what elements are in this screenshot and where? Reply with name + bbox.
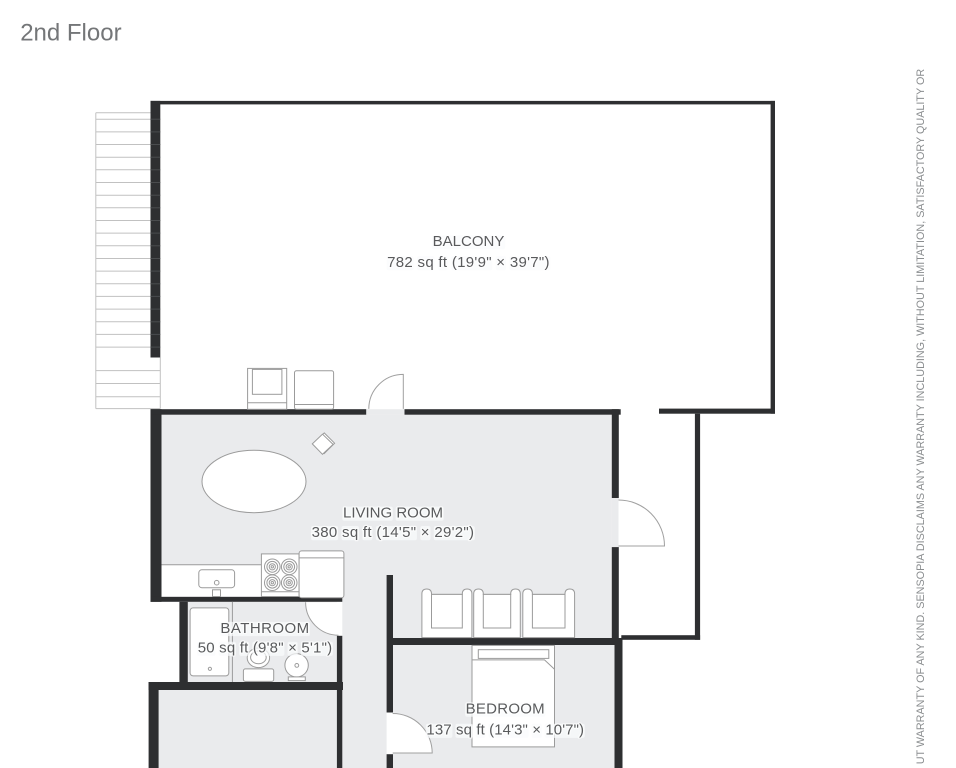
- svg-text:137 sq ft (14'3" × 10'7"): 137 sq ft (14'3" × 10'7"): [426, 722, 584, 739]
- svg-text:50 sq ft (9'8" × 5'1"): 50 sq ft (9'8" × 5'1"): [198, 640, 333, 657]
- svg-text:UT WARRANTY OF ANY KIND. SENSO: UT WARRANTY OF ANY KIND. SENSOPIA DISCLA…: [915, 69, 927, 765]
- svg-text:BATHROOM: BATHROOM: [220, 620, 309, 637]
- svg-text:BEDROOM: BEDROOM: [466, 701, 545, 718]
- svg-text:BALCONY: BALCONY: [433, 233, 505, 250]
- svg-text:2nd Floor: 2nd Floor: [20, 20, 121, 47]
- svg-text:LIVING ROOM: LIVING ROOM: [343, 505, 443, 522]
- svg-text:782 sq ft (19'9" × 39'7"): 782 sq ft (19'9" × 39'7"): [387, 254, 550, 271]
- svg-text:380 sq ft (14'5" × 29'2"): 380 sq ft (14'5" × 29'2"): [312, 524, 475, 541]
